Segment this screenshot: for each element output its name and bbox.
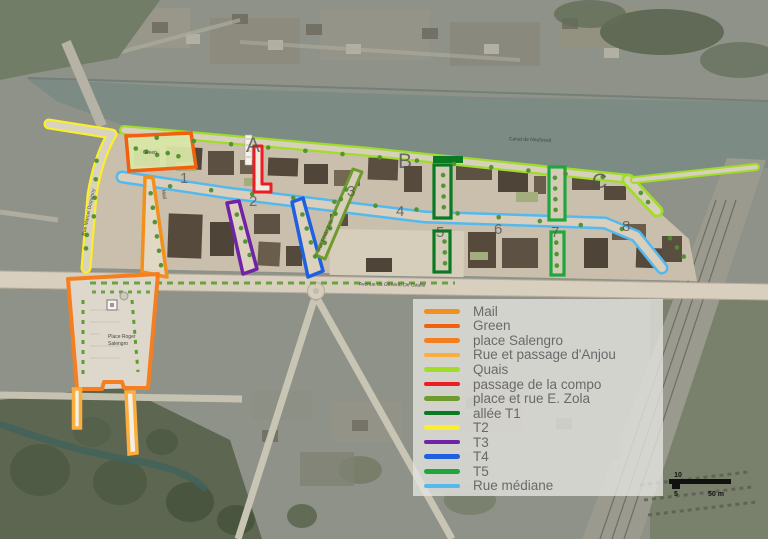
legend-color-chip — [424, 425, 460, 430]
legend-color-chip — [424, 309, 460, 314]
legend-item: Quais — [424, 362, 663, 377]
legend-item: T5 — [424, 464, 663, 479]
legend-color-chip — [424, 469, 460, 474]
street-number-7: 7 — [551, 224, 559, 241]
masterplan-map: A B C 1 2 3 4 5 6 7 8 Canal de Neufossé … — [0, 0, 768, 539]
street-number-1: 1 — [180, 170, 188, 187]
legend-item: Rue et passage d'Anjou — [424, 348, 663, 363]
legend-item-label: place Salengro — [473, 334, 563, 347]
legend-panel: MailGreenplace SalengroRue et passage d'… — [413, 299, 663, 496]
street-number-6: 6 — [494, 221, 502, 238]
legend-item-label: Mail — [473, 305, 498, 318]
legend-color-chip — [424, 338, 460, 343]
legend-item: passage de la compo — [424, 377, 663, 392]
street-number-5: 5 — [436, 224, 444, 241]
place-salengro-label-1: Place Roger — [108, 334, 136, 340]
legend-item-label: place et rue E. Zola — [473, 392, 590, 405]
legend-item-label: T3 — [473, 436, 489, 449]
section-label-c: C — [592, 170, 607, 193]
mail-label: Mail — [160, 190, 167, 200]
legend-item-label: Rue et passage d'Anjou — [473, 348, 616, 361]
scale-top-value: 10 — [674, 472, 682, 479]
scale-bottom-right-value: 50 m — [708, 491, 724, 498]
scale-bottom-left-value: 5 — [674, 491, 678, 498]
legend-item: T2 — [424, 420, 663, 435]
legend-item: allée T1 — [424, 406, 663, 421]
legend-color-chip — [424, 353, 460, 358]
section-label-b: B — [398, 150, 412, 173]
legend-item-label: T5 — [473, 465, 489, 478]
legend-color-chip — [424, 454, 460, 459]
legend-item: T4 — [424, 449, 663, 464]
legend-item: place et rue E. Zola — [424, 391, 663, 406]
place-salengro-label-2: Salengro — [108, 341, 128, 347]
avenue-label: Avenue du Général De Gaulle — [359, 281, 426, 288]
legend-color-chip — [424, 396, 460, 401]
route-green-square — [126, 133, 196, 171]
street-number-3: 3 — [347, 183, 355, 200]
legend-item-label: Quais — [473, 363, 508, 376]
legend-item-label: T4 — [473, 450, 489, 463]
section-label-a: A — [246, 134, 260, 157]
route-t5 — [549, 167, 565, 275]
street-number-4: 4 — [396, 203, 404, 220]
legend-item-label: Rue médiane — [473, 479, 553, 492]
legend-item: Rue médiane — [424, 479, 663, 494]
legend-color-chip — [424, 382, 460, 387]
legend-items: MailGreenplace SalengroRue et passage d'… — [424, 304, 663, 493]
legend-color-chip — [424, 484, 460, 489]
legend-item-label: allée T1 — [473, 407, 521, 420]
legend-color-chip — [424, 367, 460, 372]
legend-item: T3 — [424, 435, 663, 450]
street-number-2: 2 — [249, 193, 257, 210]
green-label: Green — [143, 150, 157, 156]
legend-item: place Salengro — [424, 333, 663, 348]
legend-color-chip — [424, 411, 460, 416]
legend-color-chip — [424, 440, 460, 445]
legend-color-chip — [424, 324, 460, 329]
legend-item-label: passage de la compo — [473, 378, 601, 391]
legend-item-label: Green — [473, 319, 511, 332]
legend-item: Green — [424, 319, 663, 334]
street-number-8: 8 — [622, 218, 630, 235]
legend-item-label: T2 — [473, 421, 489, 434]
legend-item: Mail — [424, 304, 663, 319]
